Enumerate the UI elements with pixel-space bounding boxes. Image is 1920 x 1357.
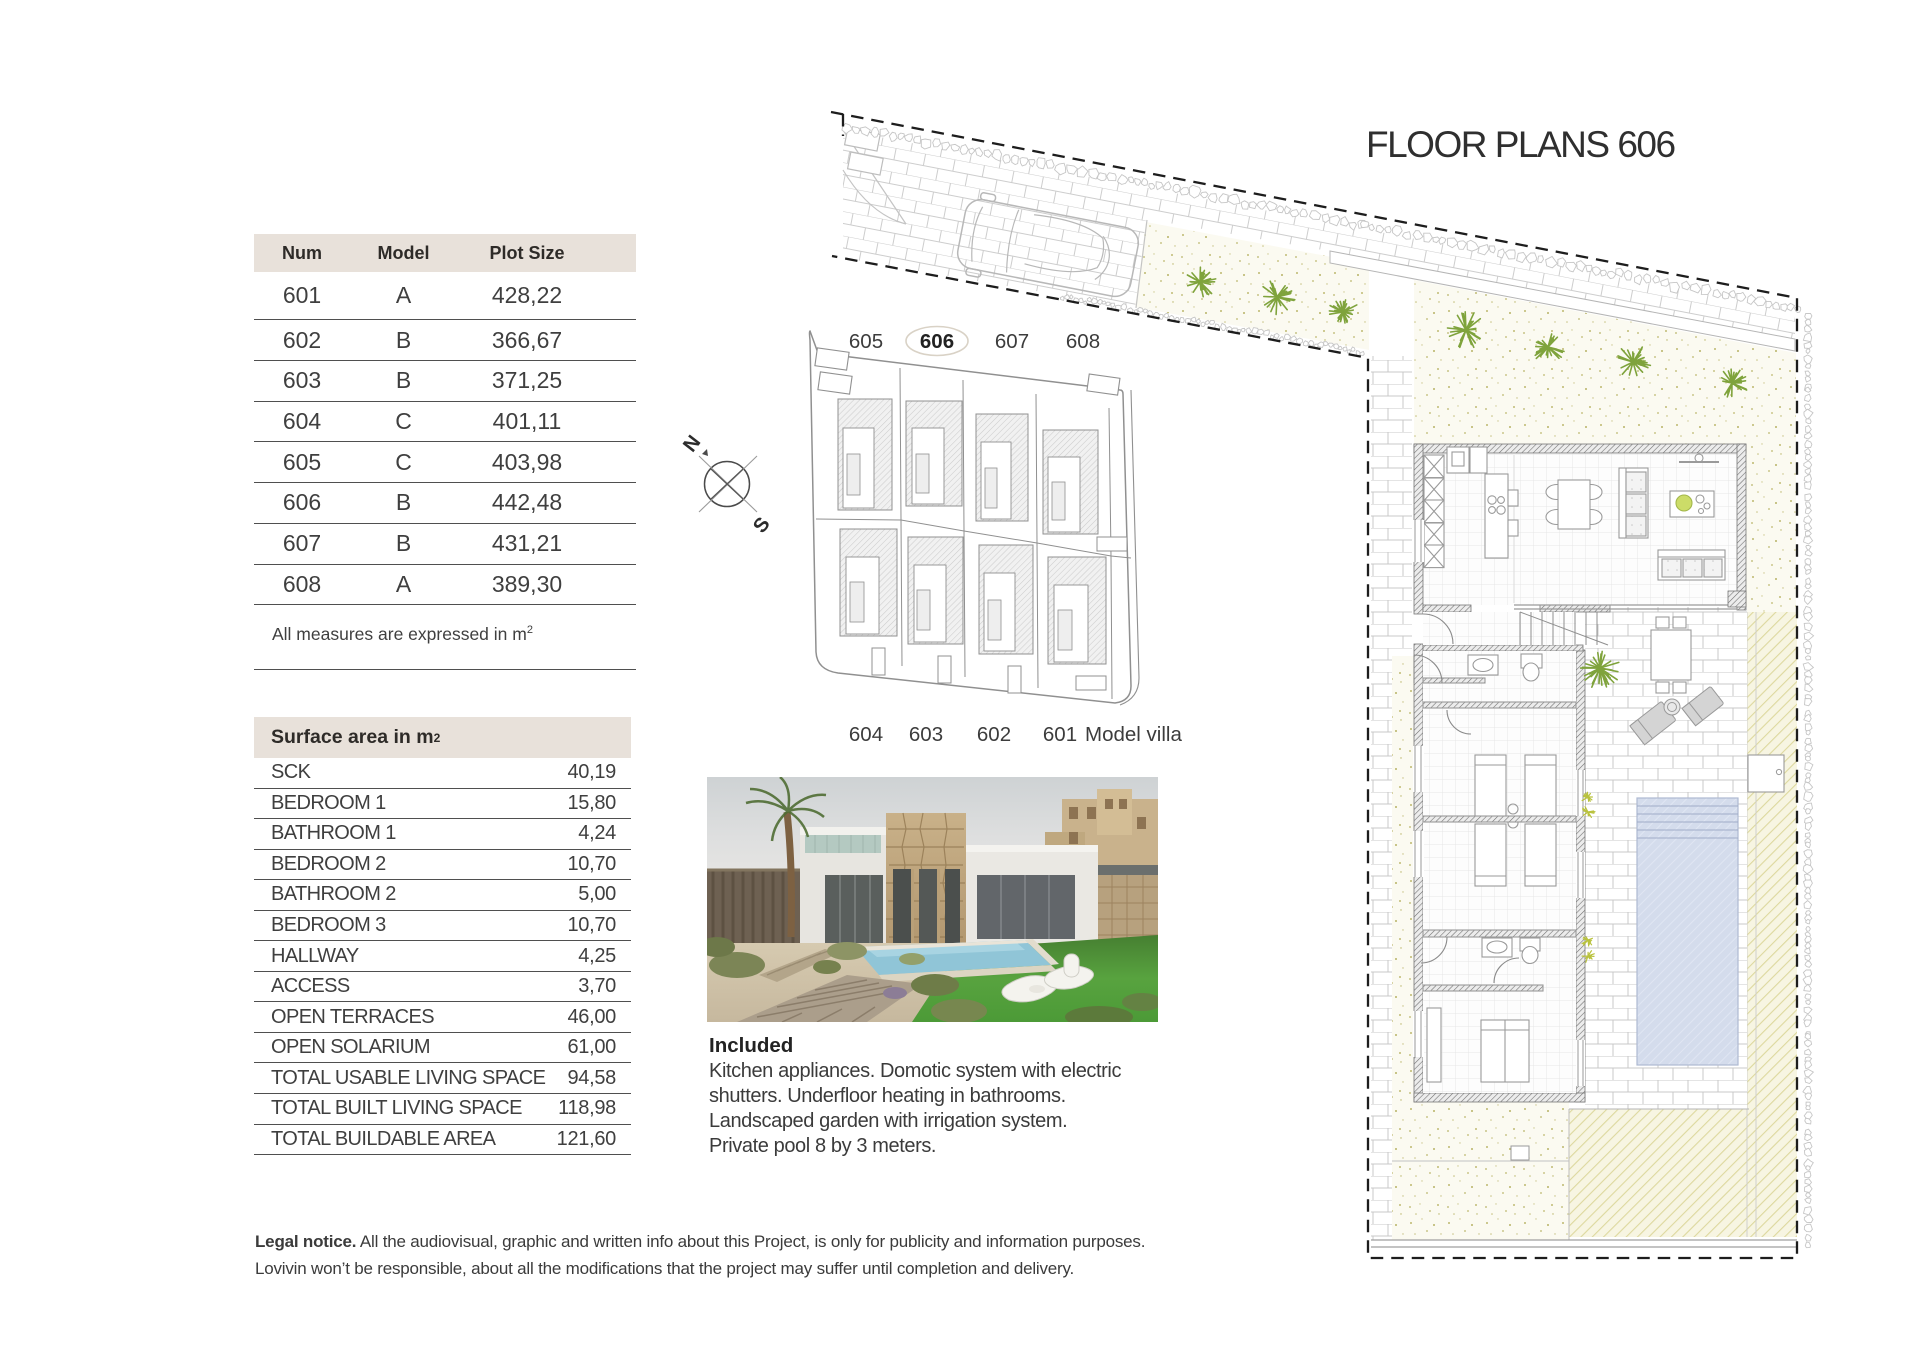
svg-text:S: S	[749, 513, 775, 537]
svg-text:N: N	[679, 431, 705, 456]
